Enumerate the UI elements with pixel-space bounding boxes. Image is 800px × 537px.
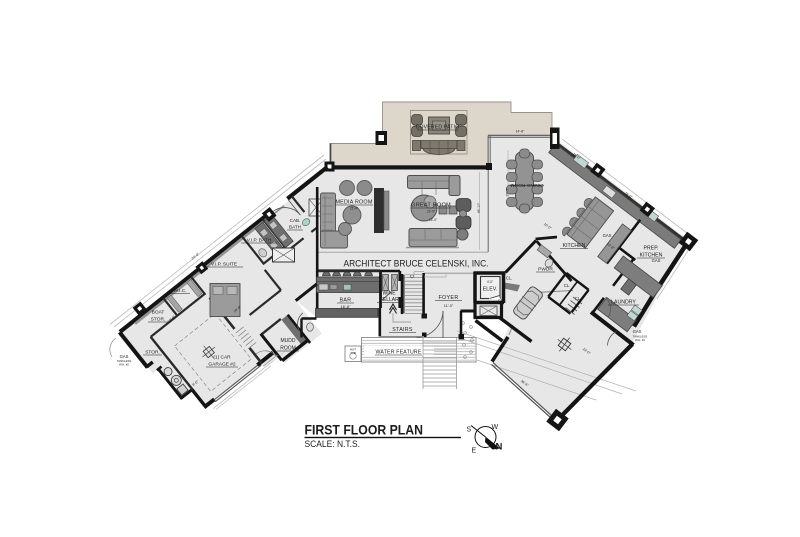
svg-text:FOYER: FOYER bbox=[438, 295, 458, 301]
svg-text:STOR.: STOR. bbox=[151, 317, 166, 323]
svg-text:WATER FEATURE: WATER FEATURE bbox=[375, 350, 421, 356]
svg-text:DINING ROOM: DINING ROOM bbox=[510, 182, 543, 188]
svg-text:GAS: GAS bbox=[603, 233, 612, 238]
svg-text:GAS: GAS bbox=[652, 258, 661, 263]
svg-text:V.I.P. SUITE: V.I.P. SUITE bbox=[211, 262, 237, 268]
svg-text:(1) CAR: (1) CAR bbox=[213, 355, 231, 361]
svg-text:21'-0": 21'-0" bbox=[427, 210, 435, 214]
svg-text:W: W bbox=[492, 424, 499, 431]
svg-text:KITCHEN: KITCHEN bbox=[563, 243, 586, 249]
svg-text:CAB.: CAB. bbox=[290, 218, 301, 223]
svg-text:V.I.P. BATH: V.I.P. BATH bbox=[247, 238, 272, 244]
svg-text:STOR.: STOR. bbox=[145, 350, 160, 356]
svg-text:MEDIA ROOM: MEDIA ROOM bbox=[335, 200, 372, 206]
svg-text:S: S bbox=[467, 427, 472, 434]
svg-text:W.H. #2: W.H. #2 bbox=[119, 363, 129, 367]
svg-text:CL.: CL. bbox=[575, 296, 582, 301]
svg-text:W.H. #1: W.H. #1 bbox=[635, 338, 645, 342]
svg-text:14'-8": 14'-8" bbox=[516, 130, 525, 134]
svg-text:4'-0": 4'-0" bbox=[487, 280, 493, 284]
svg-text:46'-10": 46'-10" bbox=[477, 202, 481, 213]
svg-text:CL.: CL. bbox=[506, 276, 513, 281]
svg-text:WINE: WINE bbox=[382, 291, 396, 297]
svg-text:ELEV.: ELEV. bbox=[483, 287, 498, 293]
svg-text:BATH: BATH bbox=[289, 225, 301, 230]
svg-text:BAR: BAR bbox=[340, 298, 352, 304]
svg-text:CELLAR: CELLAR bbox=[379, 297, 399, 303]
svg-text:LAUNDRY: LAUNDRY bbox=[611, 300, 636, 306]
svg-text:BOAT: BOAT bbox=[152, 310, 165, 316]
svg-text:CL.: CL. bbox=[498, 299, 505, 304]
svg-text:37'-2": 37'-2" bbox=[506, 187, 510, 196]
svg-text:16'-8": 16'-8" bbox=[341, 305, 351, 309]
svg-text:TUB: TUB bbox=[350, 351, 356, 355]
svg-text:W.I.C.: W.I.C. bbox=[173, 288, 186, 294]
svg-text:STAIRS: STAIRS bbox=[392, 327, 413, 333]
svg-text:FIRST FLOOR PLAN: FIRST FLOOR PLAN bbox=[305, 422, 424, 438]
svg-text:GAS: GAS bbox=[633, 329, 642, 334]
svg-text:SCALE: N.T.S.: SCALE: N.T.S. bbox=[305, 439, 361, 450]
svg-text:E: E bbox=[472, 448, 477, 455]
svg-text:ROOM: ROOM bbox=[280, 346, 296, 352]
svg-text:14'-0": 14'-0" bbox=[429, 218, 437, 222]
svg-text:PWDR: PWDR bbox=[538, 267, 553, 273]
svg-text:COVERED PATIO: COVERED PATIO bbox=[416, 125, 460, 131]
svg-text:MUDD: MUDD bbox=[281, 338, 296, 344]
svg-text:GREAT ROOM: GREAT ROOM bbox=[411, 203, 451, 209]
svg-text:21'-4": 21'-4" bbox=[350, 207, 358, 211]
svg-text:ARCHITECT BRUCE CELENSKI, INC.: ARCHITECT BRUCE CELENSKI, INC. bbox=[344, 259, 489, 269]
svg-text:11'-0": 11'-0" bbox=[444, 304, 454, 308]
svg-text:GARAGE #2: GARAGE #2 bbox=[208, 362, 236, 368]
svg-text:PREP.: PREP. bbox=[644, 246, 659, 252]
svg-text:CL.: CL. bbox=[564, 283, 571, 288]
svg-text:N: N bbox=[496, 442, 503, 453]
